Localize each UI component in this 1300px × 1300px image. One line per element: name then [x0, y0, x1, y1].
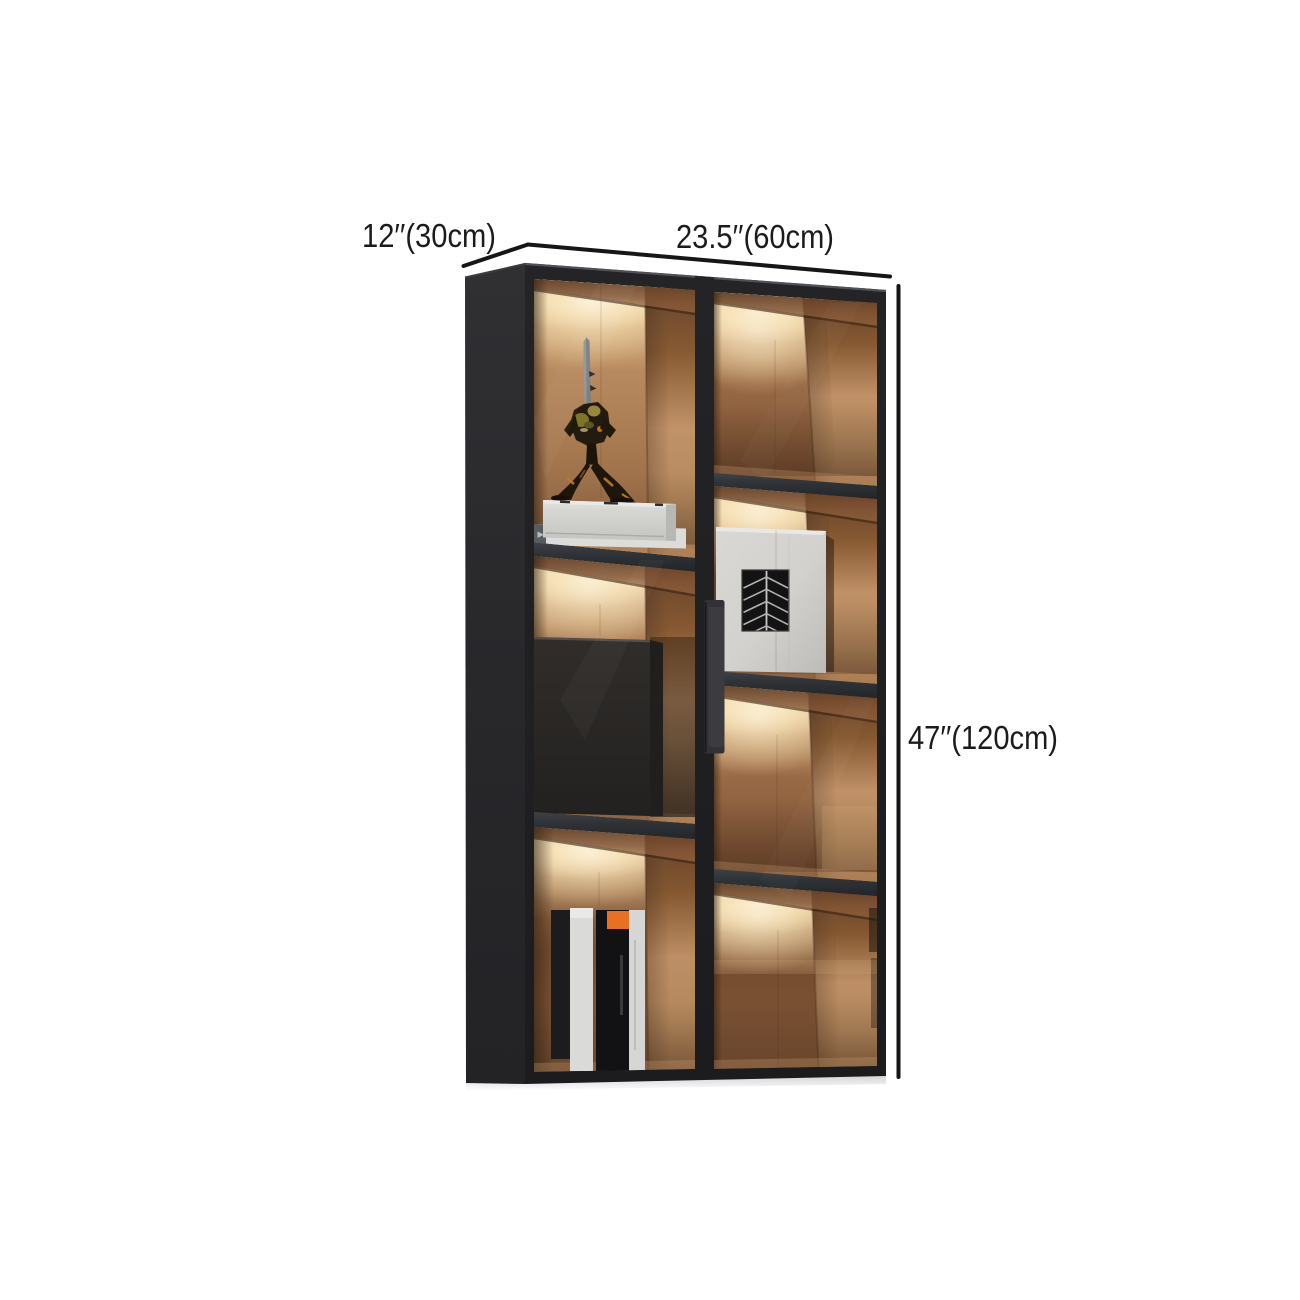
- svg-text:12′′(30cm): 12′′(30cm): [362, 217, 496, 254]
- svg-text:23.5′′(60cm): 23.5′′(60cm): [676, 218, 834, 255]
- svg-text:47′′(120cm): 47′′(120cm): [908, 719, 1058, 756]
